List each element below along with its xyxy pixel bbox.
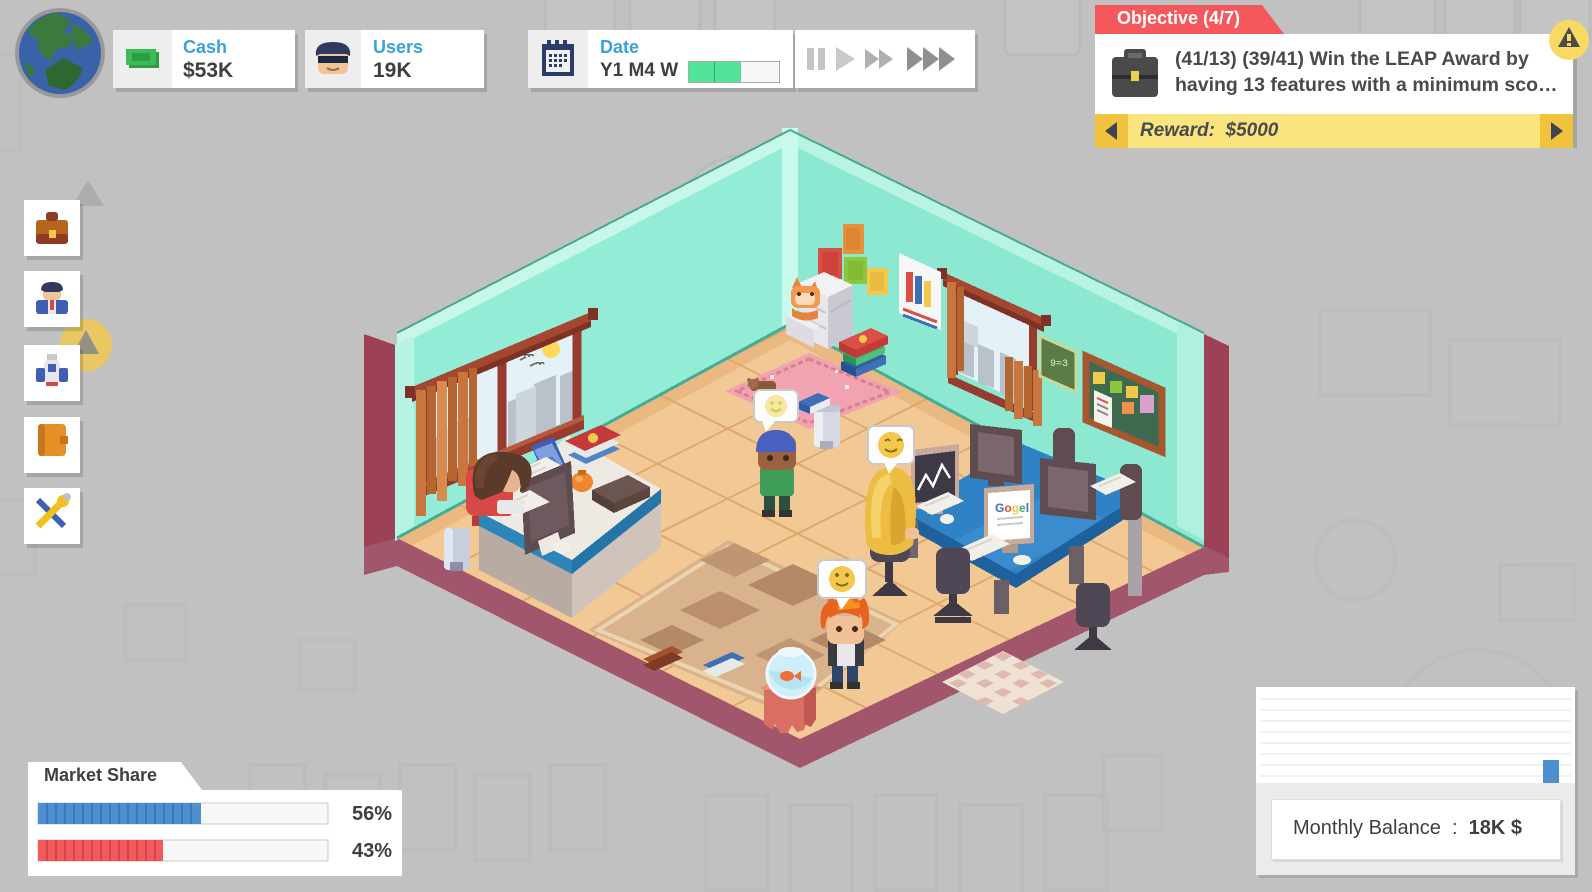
svg-text:Gogel: Gogel xyxy=(995,501,1029,515)
svg-text:9≈3: 9≈3 xyxy=(1050,359,1068,370)
